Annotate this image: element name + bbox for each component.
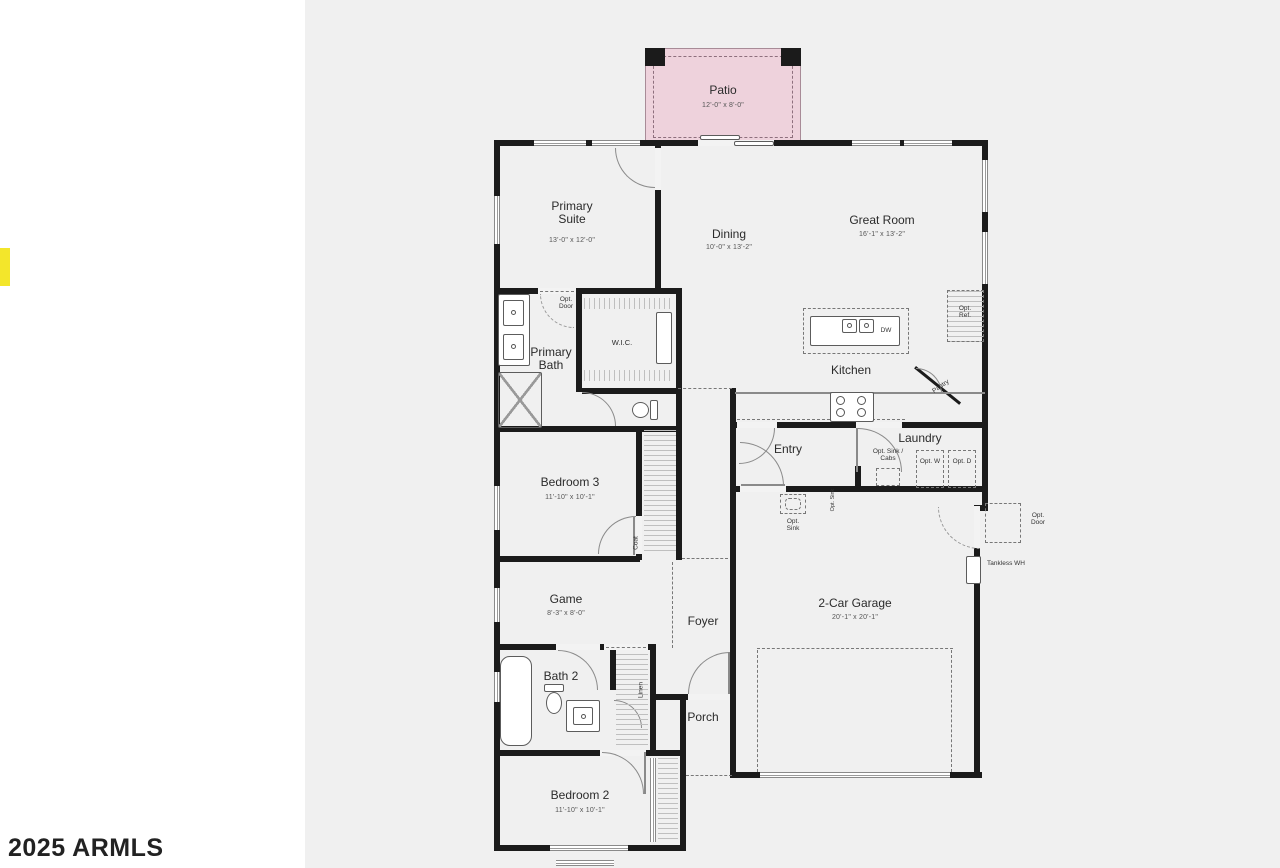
burner-dot — [511, 310, 516, 315]
door-arc — [688, 652, 730, 694]
linen-closet — [616, 654, 648, 748]
garage-dims: 20'-1" x 20'-1" — [832, 614, 878, 622]
opt-washer-label: Opt. W — [919, 458, 941, 465]
garage-label: 2-Car Garage — [818, 597, 891, 610]
front-doorway — [688, 694, 730, 700]
coat-closet-label: Coat — [633, 536, 640, 550]
floor-plan: Patio 12'-0" x 8'-0" Primary Suite 13'-0… — [0, 0, 1280, 868]
coat-closet — [644, 430, 676, 554]
foyer-label: Foyer — [688, 615, 719, 628]
bedroom2-closet — [658, 758, 678, 843]
closet-rod — [584, 298, 672, 309]
closet-sliding-door — [650, 758, 656, 842]
optional-sink-basin — [785, 498, 801, 510]
optional-washer — [916, 450, 944, 488]
floor-plan-page: Patio 12'-0" x 8'-0" Primary Suite 13'-0… — [0, 0, 1280, 868]
tankless-wh-label: Tankless WH — [985, 560, 1027, 567]
window — [494, 486, 500, 530]
dashed-line — [951, 650, 952, 772]
window — [494, 588, 500, 622]
primary-suite-label: Primary Suite — [537, 200, 607, 227]
burner-dot — [857, 396, 866, 405]
opt-door-bath-label: Opt. Door — [553, 296, 579, 311]
primary-suite-dims: 13'-0" x 12'-0" — [549, 237, 595, 245]
opt-dryer-label: Opt. D — [951, 458, 973, 465]
window — [592, 140, 640, 146]
window — [904, 140, 952, 146]
entry-label: Entry — [774, 443, 802, 456]
dashed-line — [757, 648, 953, 649]
opt-sink-label: Opt. Sink — [782, 518, 804, 533]
great-room-label: Great Room — [849, 214, 914, 227]
door-arc — [598, 516, 636, 554]
doorway — [655, 148, 661, 190]
dashed-line — [682, 558, 728, 559]
wic-label: W.I.C. — [612, 339, 632, 347]
opt-ref-label: Opt. Ref. — [954, 305, 976, 320]
sliding-patio-door — [700, 135, 740, 140]
window — [534, 140, 586, 146]
tankless-water-heater — [966, 556, 981, 584]
door-leaf — [644, 752, 646, 794]
sliding-patio-door — [734, 141, 774, 146]
toilet-bowl — [632, 402, 649, 418]
burner-dot — [836, 396, 845, 405]
game-label: Game — [550, 593, 583, 606]
bedroom3-dims: 11'-10" x 10'-1" — [545, 494, 595, 502]
door-leaf — [728, 652, 730, 694]
laundry-label: Laundry — [898, 432, 941, 445]
watermark: 2025 ARMLS — [8, 834, 164, 863]
burner-dot — [581, 714, 586, 719]
burner-dot — [857, 408, 866, 417]
door-arc — [582, 392, 616, 426]
wall — [730, 388, 736, 778]
closet-shelf — [656, 312, 672, 364]
window-sill — [556, 860, 614, 866]
doorway — [556, 644, 600, 650]
dining-label: Dining — [712, 228, 746, 241]
wall — [494, 750, 686, 756]
counter-dashed-edge — [737, 419, 905, 420]
patio-label: Patio — [709, 84, 736, 97]
bathtub — [500, 656, 532, 746]
bedroom3-label: Bedroom 3 — [541, 476, 600, 489]
window — [982, 232, 988, 284]
shower — [498, 372, 542, 428]
bedroom2-dims: 11'-10" x 10'-1" — [555, 807, 605, 815]
kitchen-label: Kitchen — [831, 364, 871, 377]
wall — [676, 288, 682, 560]
bath2-label: Bath 2 — [544, 670, 579, 683]
burner-dot — [864, 323, 869, 328]
dashed-line — [606, 647, 646, 648]
wall — [494, 556, 640, 562]
patio-post — [645, 48, 665, 66]
dashed-line — [672, 562, 673, 648]
window — [852, 140, 900, 146]
great-room-dims: 16'-1" x 13'-2" — [859, 231, 905, 239]
window — [982, 160, 988, 212]
window — [494, 196, 500, 244]
opt-sink-wall-label: Opt. Sink — [830, 489, 836, 512]
opt-sink-cabs-label: Opt. Sink / Cabs — [865, 448, 911, 463]
burner-dot — [847, 323, 852, 328]
opt-door-garage-label: Opt. Door — [1025, 512, 1051, 527]
toilet-bowl — [546, 692, 562, 714]
optional-door-arc — [938, 507, 980, 549]
burner-dot — [511, 344, 516, 349]
garage-door — [760, 772, 950, 778]
doorway — [856, 422, 902, 428]
dashed-line — [757, 650, 758, 772]
wall — [582, 388, 682, 394]
dashed-line — [678, 388, 732, 389]
linen-closet-label: Linen — [638, 682, 645, 698]
dishwasher-label: DW — [881, 327, 892, 334]
optional-side-door — [985, 503, 1021, 543]
porch-label: Porch — [687, 711, 718, 724]
wall — [650, 644, 656, 756]
burner-dot — [836, 408, 845, 417]
dining-dims: 10'-0" x 13'-2" — [706, 244, 752, 252]
optional-dryer — [948, 450, 976, 488]
closet-rod — [584, 370, 672, 381]
toilet — [544, 684, 564, 692]
game-dims: 8'-3" x 8'-0" — [547, 610, 585, 618]
door-leaf — [741, 484, 785, 486]
window — [550, 845, 628, 851]
bedroom2-label: Bedroom 2 — [551, 789, 610, 802]
patio-post — [781, 48, 801, 66]
dashed-line — [540, 291, 574, 292]
optional-laundry-sink — [876, 468, 900, 486]
door-arc — [615, 148, 655, 188]
primary-bath-label: Primary Bath — [522, 346, 580, 373]
patio-dims: 12'-0" x 8'-0" — [702, 102, 744, 110]
doorway — [740, 486, 786, 492]
toilet — [650, 400, 658, 420]
porch-edge — [686, 775, 732, 776]
